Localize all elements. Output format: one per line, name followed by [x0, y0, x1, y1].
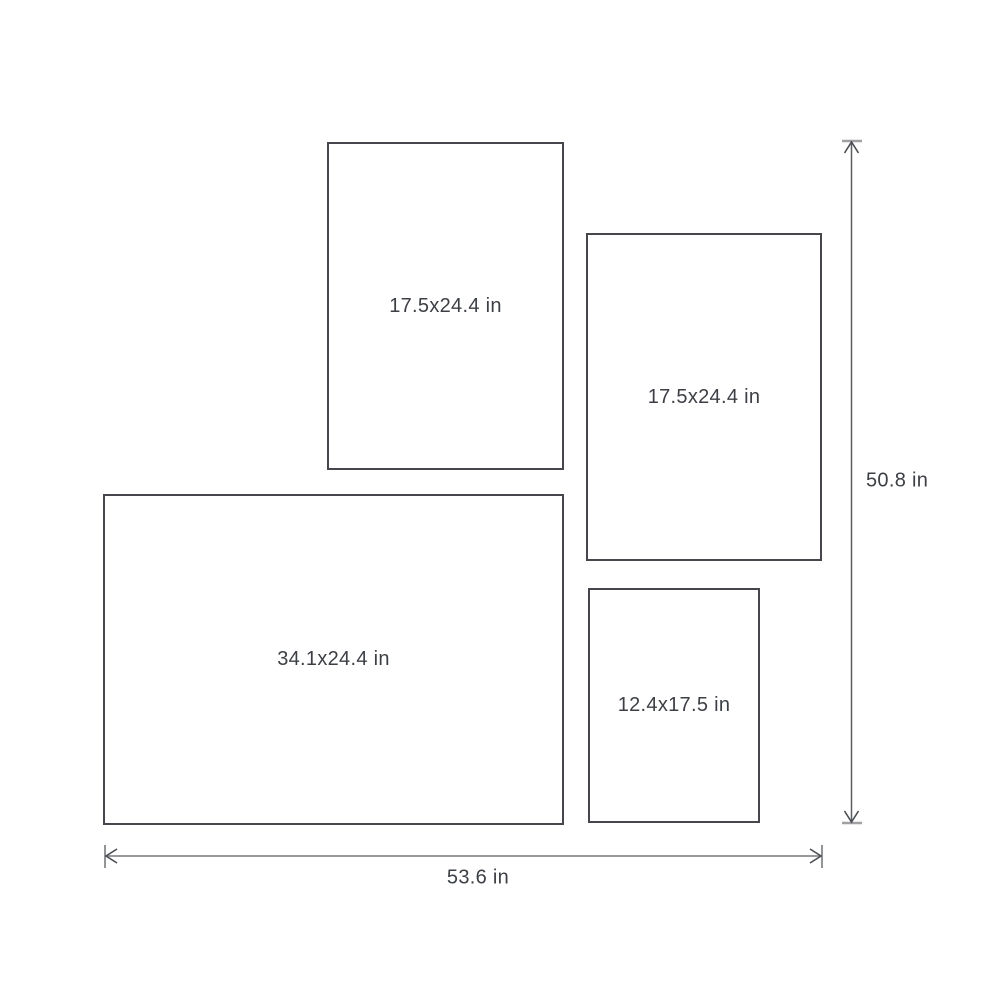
frame-size-label: 17.5x24.4 in	[389, 295, 502, 318]
frame-size-label: 12.4x17.5 in	[618, 694, 731, 717]
width-dimension-label: 53.6 in	[447, 867, 509, 890]
down-arrowhead-icon	[845, 811, 859, 822]
frame-size-label: 34.1x24.4 in	[277, 648, 390, 671]
frame-rect-bottom-left: 34.1x24.4 in	[103, 494, 564, 825]
frame-rect-top-left: 17.5x24.4 in	[327, 142, 564, 470]
left-arrowhead-icon	[106, 849, 117, 863]
frame-layout-diagram: 17.5x24.4 in 17.5x24.4 in 34.1x24.4 in 1…	[0, 0, 1000, 1000]
vertical-dimension-arrow	[842, 141, 862, 823]
horizontal-dimension-arrow	[105, 845, 822, 868]
frame-rect-bottom-right: 12.4x17.5 in	[588, 588, 760, 823]
frame-rect-right: 17.5x24.4 in	[586, 233, 822, 561]
up-arrowhead-icon	[845, 142, 859, 153]
height-dimension-label: 50.8 in	[866, 470, 928, 493]
frame-size-label: 17.5x24.4 in	[648, 386, 761, 409]
right-arrowhead-icon	[810, 849, 821, 863]
